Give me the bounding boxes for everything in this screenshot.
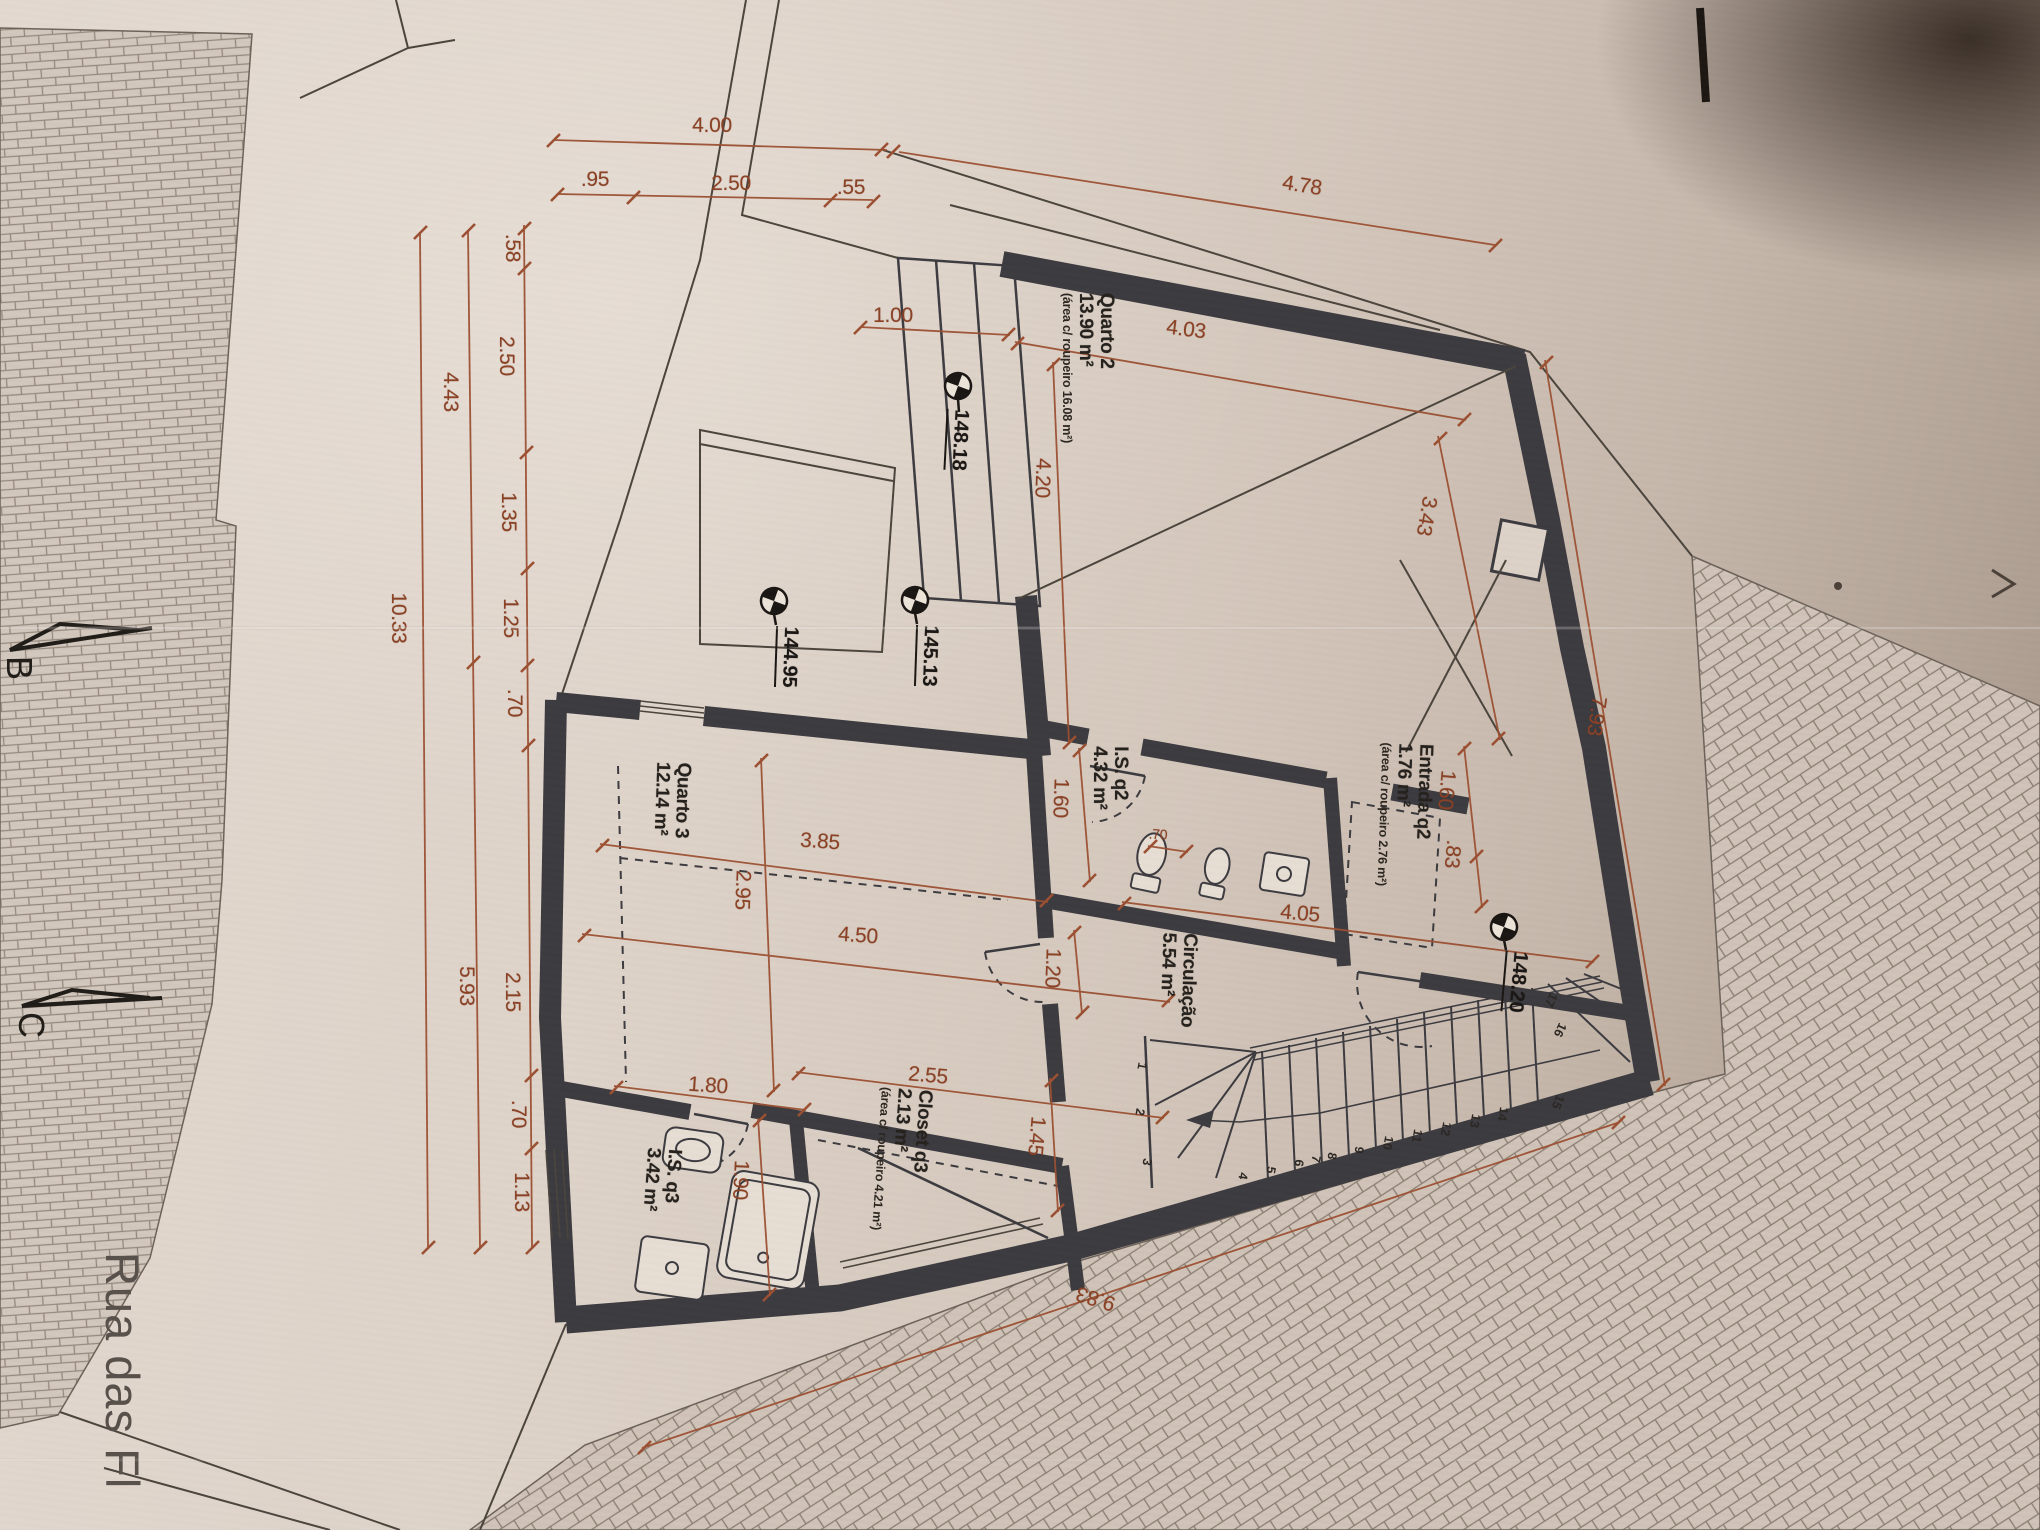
photo-artifacts: [1700, 8, 2014, 597]
shower-tray-icon: [634, 1236, 709, 1301]
elevation-marker-icon: [1487, 910, 1520, 943]
elevation-marker-icon: [898, 583, 931, 616]
bidet-icon: [1199, 846, 1233, 900]
section-marker-c-label: C: [10, 1012, 52, 1038]
neighbor-building-left-hatch: [0, 28, 252, 1428]
street-name-label: Rua das Fl: [95, 1252, 150, 1489]
elevation-marker-icon: [757, 584, 790, 617]
section-marker-b-label: B: [0, 656, 40, 680]
shaft-detail: [1016, 366, 1549, 756]
edge-dot-mark: [1834, 582, 1842, 590]
window-band-quarto2: [898, 258, 1040, 606]
neighbor-building-bottomright-hatch: [470, 556, 2040, 1530]
paper-crease: [0, 626, 2040, 630]
plan-linework: [0, 0, 2040, 1530]
toilet-icon: [1130, 831, 1169, 894]
washbasin-icon: [1259, 852, 1309, 897]
paper-crease: [0, 1458, 2040, 1462]
edge-chevron-mark: [1992, 570, 2014, 597]
toilet-q3-icon: [661, 1126, 724, 1174]
terrace-outline: [700, 430, 895, 652]
floor-plan-photo: 4.00.952.50.554.78.582.501.351.25.702.15…: [0, 0, 2040, 1530]
